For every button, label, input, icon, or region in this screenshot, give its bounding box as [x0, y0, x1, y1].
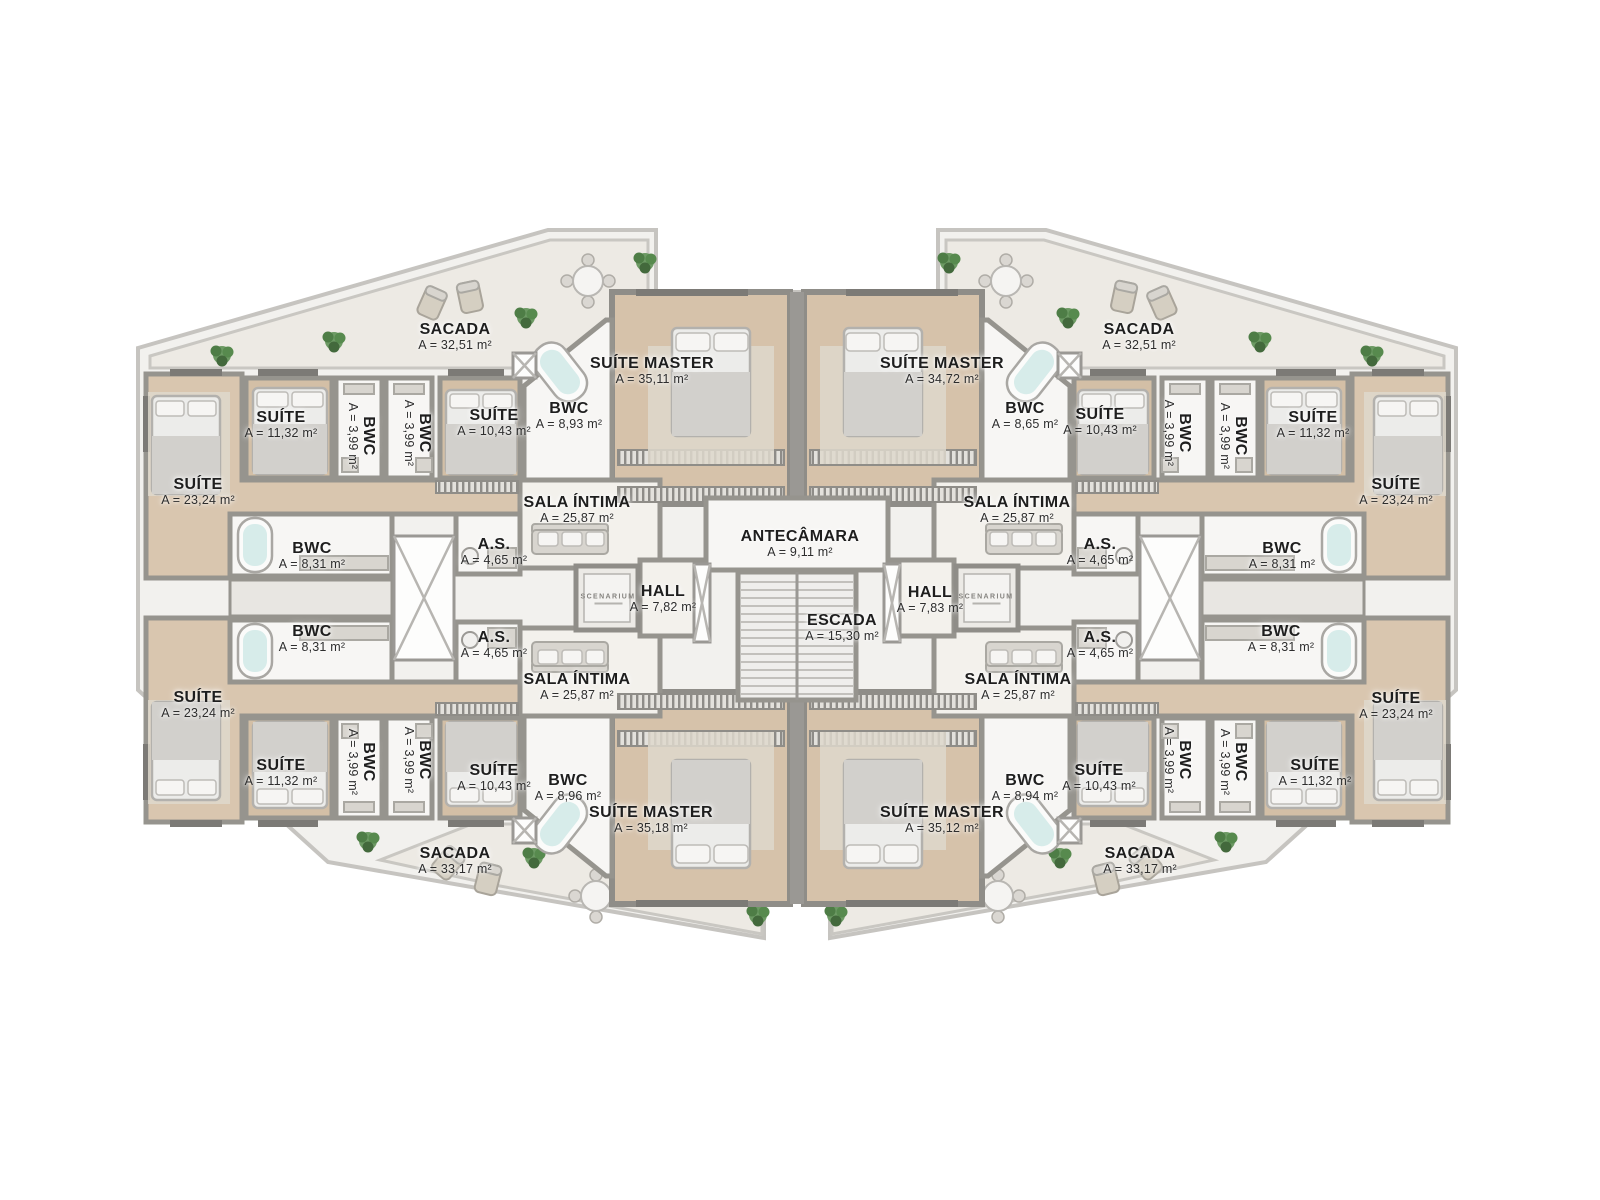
room-label-sala-intima-bl: SALA ÍNTIMAA = 25,87 m² — [524, 672, 631, 702]
room-label-suite-master-tr: SUÍTE MASTERA = 34,72 m² — [880, 356, 1004, 386]
room-label-hall-left: HALLA = 7,82 m² — [630, 584, 696, 614]
room-label-bwc-master-br: BWCA = 8,94 m² — [992, 773, 1058, 803]
room-label-sala-intima-tl: SALA ÍNTIMAA = 25,87 m² — [524, 495, 631, 525]
room-label-escada: ESCADAA = 15,30 m² — [805, 613, 879, 643]
room-label-hall-right: HALLA = 7,83 m² — [897, 585, 963, 615]
service-shaft-left — [694, 564, 710, 642]
floor-plan-page: ANTECÂMARAA = 9,11 m² HALLA = 7,82 m² HA… — [0, 0, 1600, 1200]
elevator-brand-logo-left: SCENARIUM — [581, 594, 636, 605]
room-label-suite-small-bl: SUÍTEA = 10,43 m² — [457, 763, 531, 793]
room-label-suite-small-br: SUÍTEA = 10,43 m² — [1062, 763, 1136, 793]
room-label-suite-large-bl: SUÍTEA = 23,24 m² — [161, 690, 235, 720]
room-label-bwc-suite-br: BWCA = 8,31 m² — [1248, 624, 1314, 654]
room-label-suite-mid-tr: SUÍTEA = 11,32 m² — [1277, 410, 1350, 440]
room-label-bwc-b-bl: BWCA = 3,99 m² — [402, 727, 432, 793]
room-label-bwc-suite-bl: BWCA = 8,31 m² — [279, 624, 345, 654]
room-label-sacada-tr: SACADAA = 32,51 m² — [1102, 322, 1176, 352]
room-label-bwc-a-tr: BWCA = 3,99 m² — [1218, 403, 1248, 469]
room-label-bwc-master-tr: BWCA = 8,65 m² — [992, 401, 1058, 431]
room-label-sala-intima-tr: SALA ÍNTIMAA = 25,87 m² — [964, 495, 1071, 525]
room-label-bwc-suite-tl: BWCA = 8,31 m² — [279, 541, 345, 571]
room-label-bwc-master-bl: BWCA = 8,96 m² — [535, 773, 601, 803]
room-label-bwc-master-tl: BWCA = 8,93 m² — [536, 401, 602, 431]
room-label-suite-large-br: SUÍTEA = 23,24 m² — [1359, 691, 1433, 721]
room-label-sacada-bl: SACADAA = 33,17 m² — [418, 846, 492, 876]
room-label-bwc-b-tr: BWCA = 3,99 m² — [1162, 400, 1192, 466]
room-label-sala-intima-br: SALA ÍNTIMAA = 25,87 m² — [965, 672, 1072, 702]
room-label-suite-mid-tl: SUÍTEA = 11,32 m² — [245, 410, 318, 440]
room-label-sacada-tl: SACADAA = 32,51 m² — [418, 322, 492, 352]
room-label-bwc-b-br: BWCA = 3,99 m² — [1162, 727, 1192, 793]
room-label-suite-master-bl: SUÍTE MASTERA = 35,18 m² — [589, 805, 713, 835]
room-label-suite-mid-br: SUÍTEA = 11,32 m² — [1279, 758, 1352, 788]
elevator-brand-logo-right: SCENARIUM — [959, 594, 1014, 605]
room-label-bwc-a-tl: BWCA = 3,99 m² — [346, 403, 376, 469]
room-label-suite-mid-bl: SUÍTEA = 11,32 m² — [245, 758, 318, 788]
room-label-as-br: A.S.A = 4,65 m² — [1067, 630, 1133, 660]
room-label-bwc-a-br: BWCA = 3,99 m² — [1218, 729, 1248, 795]
room-label-antecamara: ANTECÂMARAA = 9,11 m² — [741, 529, 860, 559]
room-label-bwc-b-tl: BWCA = 3,99 m² — [402, 400, 432, 466]
room-label-suite-master-br: SUÍTE MASTERA = 35,12 m² — [880, 805, 1004, 835]
room-label-as-tl: A.S.A = 4,65 m² — [461, 537, 527, 567]
floor-plan-drawing — [0, 0, 1600, 1200]
room-label-suite-small-tr: SUÍTEA = 10,43 m² — [1063, 407, 1137, 437]
room-label-as-bl: A.S.A = 4,65 m² — [461, 630, 527, 660]
room-label-suite-master-tl: SUÍTE MASTERA = 35,11 m² — [590, 356, 714, 386]
room-label-suite-large-tl: SUÍTEA = 23,24 m² — [161, 477, 235, 507]
room-label-suite-small-tl: SUÍTEA = 10,43 m² — [457, 408, 531, 438]
room-label-bwc-suite-tr: BWCA = 8,31 m² — [1249, 541, 1315, 571]
room-label-as-tr: A.S.A = 4,65 m² — [1067, 537, 1133, 567]
room-label-bwc-a-bl: BWCA = 3,99 m² — [346, 729, 376, 795]
room-label-sacada-br: SACADAA = 33,17 m² — [1103, 846, 1177, 876]
room-label-suite-large-tr: SUÍTEA = 23,24 m² — [1359, 477, 1433, 507]
